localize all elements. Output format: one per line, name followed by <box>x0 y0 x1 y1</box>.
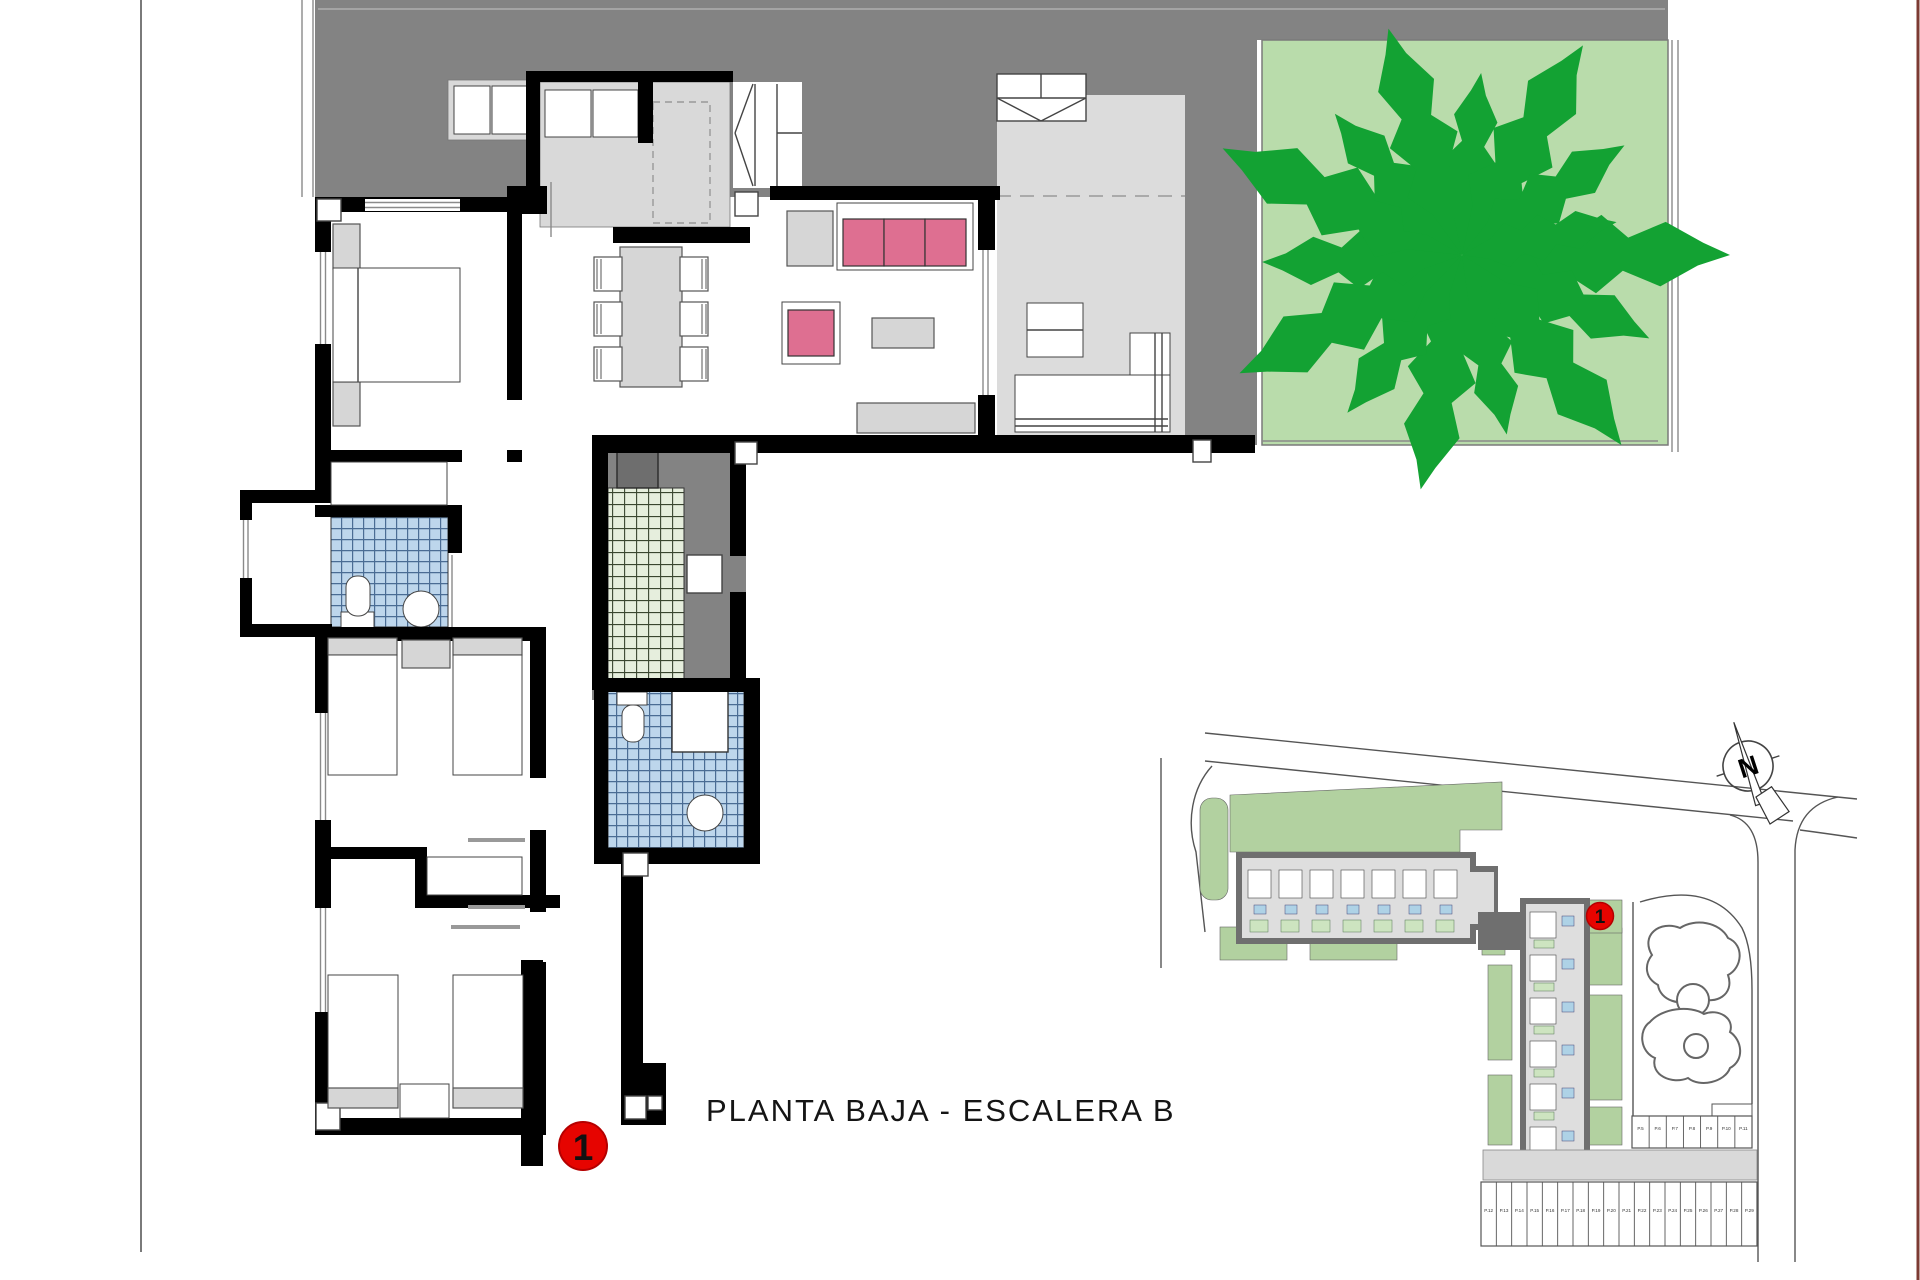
column <box>735 442 757 464</box>
north-label: N <box>1734 750 1762 785</box>
parking-stall-label: P.21 <box>1622 1208 1631 1213</box>
kitchen-cabinet <box>545 90 591 137</box>
parking-stall-label: P.18 <box>1576 1208 1585 1213</box>
plan-title: PLANTA BAJA - ESCALERA B <box>706 1093 1176 1128</box>
single-bed <box>453 655 522 775</box>
parking-stall-label: P.29 <box>1745 1208 1754 1213</box>
bedroom-3-furniture <box>328 975 523 1118</box>
dining-chair <box>594 302 622 336</box>
column <box>1193 440 1211 462</box>
nightstand <box>333 224 360 269</box>
nightstand <box>400 1084 449 1118</box>
parking-stall-label: P.28 <box>1730 1208 1739 1213</box>
parking-stall-label: P.20 <box>1607 1208 1616 1213</box>
unit-marker-main: 1 <box>559 1122 607 1170</box>
entry-vestibule <box>733 82 802 188</box>
parking-stall-label: P.24 <box>1668 1208 1677 1213</box>
column <box>625 1096 646 1119</box>
column <box>648 1096 662 1110</box>
parking-stall-label: P.25 <box>1684 1208 1693 1213</box>
parking-row-right <box>1632 1116 1752 1148</box>
nightstand <box>333 382 360 426</box>
parking-stall-label: P.27 <box>1714 1208 1723 1213</box>
dining-chair <box>680 302 708 336</box>
footboard <box>328 1088 398 1108</box>
patio-tiled-floor <box>608 488 684 682</box>
window <box>316 252 330 344</box>
dining-chair <box>680 257 708 291</box>
unit-number: 1 <box>573 1127 594 1168</box>
parking-stall-label: P.7 <box>1672 1126 1679 1131</box>
living-furniture <box>782 203 975 433</box>
sink <box>403 591 439 627</box>
dining-chair <box>594 347 622 381</box>
column <box>735 192 758 216</box>
parking-stall-label: P.6 <box>1655 1126 1662 1131</box>
bathroom-1 <box>331 517 452 630</box>
unit-number: 1 <box>1595 907 1606 928</box>
dining-table <box>620 247 682 387</box>
headboard <box>328 638 397 655</box>
site-plan-inset: P.5P.6P.7P.8P.9P.10P.11P.12P.13P.14P.15P… <box>1161 712 1857 1262</box>
parking-stall-label: P.14 <box>1515 1208 1524 1213</box>
floor-plan-drawing: PLANTA BAJA - ESCALERA B 1 <box>0 0 1920 1280</box>
column <box>623 853 648 876</box>
shower <box>672 690 728 752</box>
sink <box>687 795 723 831</box>
patio-area <box>592 435 746 700</box>
parking-stall-label: P.15 <box>1530 1208 1539 1213</box>
coffee-table <box>872 318 934 348</box>
site-building-horizontal <box>1236 852 1498 944</box>
parking-stall-label: P.11 <box>1739 1126 1748 1131</box>
parking-stall-label: P.22 <box>1638 1208 1647 1213</box>
parking-stall-label: P.13 <box>1500 1208 1509 1213</box>
parking-stall-label: P.10 <box>1722 1126 1731 1131</box>
footboard <box>453 1088 523 1108</box>
parking-stall-label: P.8 <box>1689 1126 1696 1131</box>
dining-furniture <box>594 247 708 387</box>
single-bed <box>328 655 397 775</box>
sliding-door <box>979 250 993 395</box>
site-building-vertical <box>1520 898 1590 1178</box>
dining-chair <box>594 257 622 291</box>
headboard <box>453 638 522 655</box>
kitchen-cabinet <box>593 90 638 137</box>
parking-stall-label: P.9 <box>1706 1126 1713 1131</box>
garden-area <box>1207 18 1730 495</box>
parking-stall-label: P.16 <box>1546 1208 1555 1213</box>
parking-stall-label: P.12 <box>1484 1208 1493 1213</box>
bedroom-1-furniture <box>331 224 460 505</box>
unit-marker-site: 1 <box>1587 903 1614 930</box>
sideboard <box>857 403 975 433</box>
parking-stall-label: P.17 <box>1561 1208 1570 1213</box>
double-bed <box>333 268 460 382</box>
window <box>241 520 251 578</box>
site-pool <box>1642 923 1740 1083</box>
parking-stall-label: P.5 <box>1637 1126 1644 1131</box>
dining-chair <box>680 347 708 381</box>
single-bed <box>453 975 523 1088</box>
single-bed <box>328 975 398 1088</box>
parking-stall-label: P.19 <box>1592 1208 1601 1213</box>
nightstand <box>402 640 450 668</box>
floor-plan-sheet: PLANTA BAJA - ESCALERA B 1 <box>0 0 1920 1280</box>
parking-stall-label: P.23 <box>1653 1208 1662 1213</box>
toilet <box>617 692 647 705</box>
site-road <box>1483 1150 1757 1180</box>
bathroom-2 <box>608 690 744 848</box>
porch-area <box>997 74 1185 435</box>
wardrobe <box>331 462 447 505</box>
washer <box>687 555 722 593</box>
side-table <box>787 211 833 266</box>
wardrobe <box>427 857 522 895</box>
parking-stall-label: P.26 <box>1699 1208 1708 1213</box>
column <box>317 199 341 221</box>
